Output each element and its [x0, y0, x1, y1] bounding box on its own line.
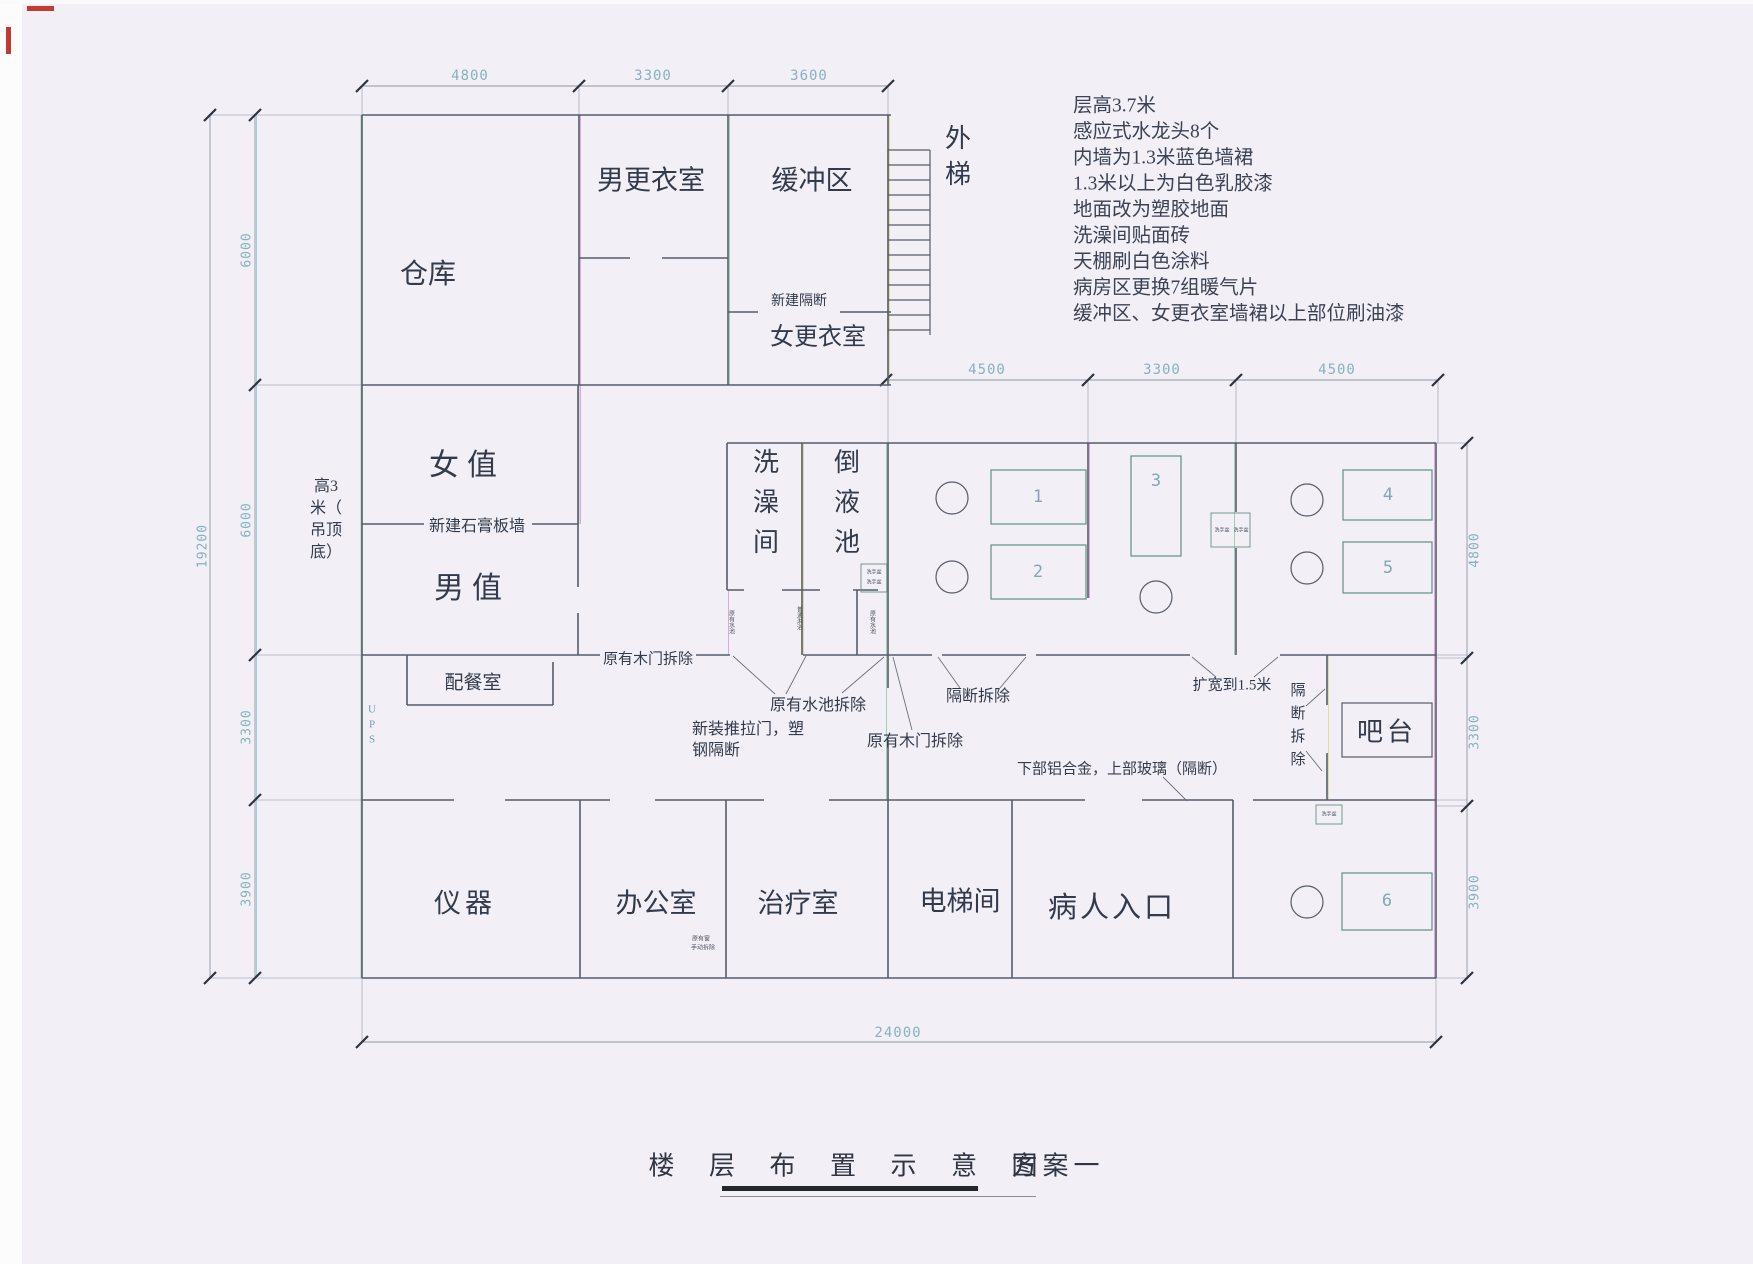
dim-right-4800: 4800: [1468, 532, 1483, 567]
room-patient-entrance: 病人入口: [1048, 884, 1176, 926]
room-instruments: 仪器: [434, 882, 496, 921]
dim-ward-4500a: 4500: [968, 362, 1006, 378]
height-note-line: 米（: [310, 494, 342, 518]
dim-top-3300: 3300: [634, 68, 672, 84]
dim-left-6000a: 6000: [240, 232, 255, 267]
basin-label: 洗手盆: [866, 569, 881, 576]
room-shower: 洗澡间: [746, 448, 783, 568]
page-title: 楼 层 布 置 示 意 图: [648, 1146, 1051, 1183]
dim-bottom-24000: 24000: [874, 1025, 921, 1041]
dim-ward-3300: 3300: [1143, 362, 1181, 378]
anno-new-partition: 新建隔断: [771, 290, 827, 310]
room-office: 办公室: [616, 882, 697, 921]
office-tiny-note-2: 手动拆除: [691, 943, 715, 952]
anno-remove-partition-v: 隔断拆除: [1287, 682, 1308, 774]
dim-left-3900: 3900: [240, 871, 255, 906]
room-mens-changing: 男更衣室: [597, 159, 705, 198]
dim-ward-4500b: 4500: [1318, 362, 1356, 378]
room-womens-changing: 女更衣室: [770, 317, 866, 352]
height-note-line: 高3: [314, 472, 338, 496]
room-warehouse: 仓库: [400, 252, 456, 292]
note-line: 内墙为1.3米蓝色墙裙: [1073, 141, 1253, 170]
anno-new-gypsum-wall: 新建石膏板墙: [429, 512, 525, 536]
dim-left-3300: 3300: [240, 709, 255, 744]
basin-label: 洗手盆: [1321, 811, 1336, 818]
room-outer-stair: 外梯: [938, 124, 975, 196]
tiny-shower-mid: 普通淋浴: [795, 606, 804, 630]
anno-widen-door: 扩宽到1.5米: [1193, 674, 1272, 695]
floor-plan-scan: 层高3.7米 感应式水龙头8个 内墙为1.3米蓝色墙裙 1.3米以上为白色乳胶漆…: [0, 0, 1753, 1264]
red-corner-marks: [6, 6, 54, 54]
dim-left-total-19200: 19200: [196, 524, 211, 568]
ups-label: UPS: [366, 704, 378, 749]
bed-6-label: 6: [1382, 891, 1392, 911]
note-line: 病房区更换7组暖气片: [1073, 271, 1258, 300]
bed-2-label: 2: [1033, 562, 1043, 582]
bed-3-label: 3: [1151, 471, 1161, 491]
note-line: 缓冲区、女更衣室墙裙以上部位刷油漆: [1073, 297, 1405, 326]
anno-remove-wood-door-1: 原有木门拆除: [600, 648, 696, 669]
note-line: 感应式水龙头8个: [1073, 115, 1219, 144]
anno-remove-wood-door-2: 原有木门拆除: [867, 727, 963, 751]
height-note-line: 吊顶: [310, 516, 342, 540]
walls-layer: [362, 115, 1436, 978]
ward-furniture: [936, 456, 1432, 930]
dim-top-3600: 3600: [790, 68, 828, 84]
floor-plan-drawing: [0, 0, 1753, 1264]
note-line: 地面改为塑胶地面: [1073, 193, 1229, 222]
page-title-scheme: 方案一: [1011, 1146, 1104, 1183]
bed-5-label: 5: [1383, 558, 1393, 578]
room-male-duty: 男值: [434, 563, 510, 607]
tiny-pool-left: 原有水池: [727, 610, 736, 634]
dim-left-6000b: 6000: [240, 502, 255, 537]
note-line: 洗澡间贴面砖: [1073, 219, 1190, 248]
bed-1-label: 1: [1033, 487, 1043, 507]
office-tiny-note-1: 原有窗: [692, 934, 710, 943]
bed-4-label: 4: [1383, 485, 1393, 505]
anno-remove-pool: 原有水池拆除: [770, 691, 866, 715]
dim-right-3900: 3900: [1468, 874, 1483, 909]
room-elevator: 电梯间: [920, 880, 1001, 919]
room-pantry: 配餐室: [444, 668, 501, 695]
anno-alu-glass: 下部铝合金，上部玻璃（隔断）: [1017, 758, 1227, 779]
height-note-line: 底）: [310, 538, 342, 562]
room-treatment: 治疗室: [758, 882, 839, 921]
anno-sliding-door-line2: 钢隔断: [692, 736, 740, 760]
room-pour-pool: 倒液池: [827, 448, 864, 568]
anno-remove-partition-h: 隔断拆除: [946, 682, 1010, 706]
title-underline-thick: [722, 1186, 978, 1191]
note-line: 1.3米以上为白色乳胶漆: [1073, 167, 1273, 196]
title-underline-thin: [720, 1196, 1036, 1197]
room-female-duty: 女值: [429, 440, 505, 484]
external-stair-icon: [888, 150, 930, 335]
note-line: 天棚刷白色涂料: [1073, 245, 1210, 274]
tiny-pool-right: 原有水池: [868, 610, 877, 634]
basin-label: 洗手盆: [866, 579, 881, 586]
note-line: 层高3.7米: [1073, 89, 1156, 118]
basin-label: 洗手盆: [1214, 527, 1229, 534]
dim-top-4800: 4800: [451, 68, 489, 84]
room-buffer-zone: 缓冲区: [772, 159, 853, 198]
room-bar-counter: 吧台: [1357, 712, 1417, 749]
basin-label: 洗手盆: [1233, 527, 1248, 534]
dim-right-3300: 3300: [1468, 714, 1483, 749]
